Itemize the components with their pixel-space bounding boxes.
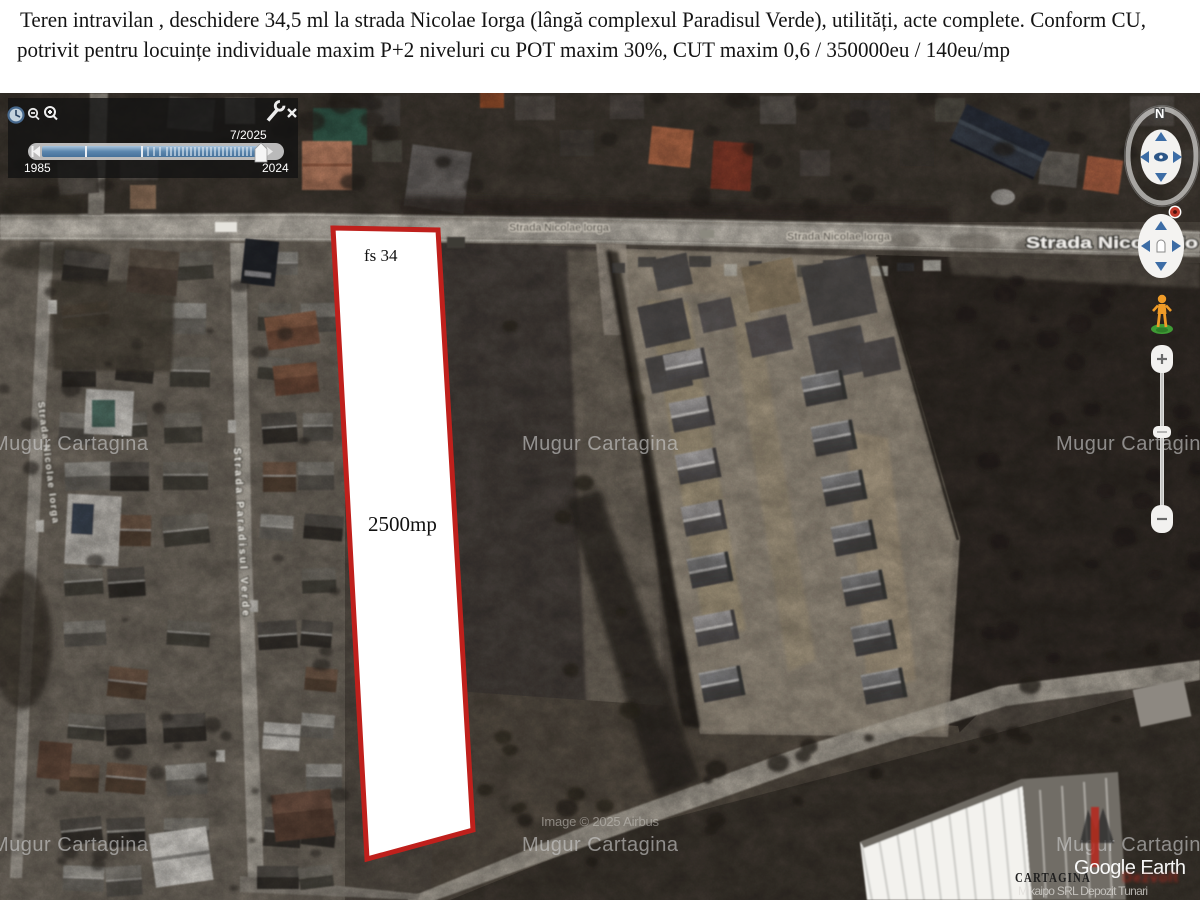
- svg-text:Strada Nicolae Iorga: Strada Nicolae Iorga: [787, 231, 891, 243]
- svg-text:Mikaipo SRL Depozit Tunari: Mikaipo SRL Depozit Tunari: [1018, 884, 1148, 898]
- svg-text:Mugur Cartagina: Mugur Cartagina: [522, 433, 679, 455]
- svg-text:N: N: [1155, 106, 1164, 121]
- svg-text:2500mp: 2500mp: [368, 512, 437, 536]
- svg-text:Mugur Cartagina: Mugur Cartagina: [1056, 834, 1200, 856]
- svg-text:potrivit pentru locuințe indiv: potrivit pentru locuințe individuale max…: [17, 37, 1010, 62]
- svg-text:Mugur Cartagina: Mugur Cartagina: [522, 834, 679, 856]
- svg-text:Mugur Cartagina: Mugur Cartagina: [0, 433, 149, 455]
- svg-text:Image © 2025 Airbus: Image © 2025 Airbus: [541, 814, 660, 829]
- svg-text:7/2025: 7/2025: [230, 128, 267, 142]
- svg-text:Teren intravilan , deschidere: Teren intravilan , deschidere 34,5 ml la…: [20, 7, 1146, 32]
- svg-text:1985: 1985: [24, 161, 51, 175]
- svg-text:Mugur Cartagina: Mugur Cartagina: [1056, 433, 1200, 455]
- svg-text:Dezvolt: Dezvolt: [1122, 869, 1178, 885]
- svg-text:2024: 2024: [262, 161, 289, 175]
- svg-text:Mugur Cartagina: Mugur Cartagina: [0, 834, 149, 856]
- svg-text:fs 34: fs 34: [364, 246, 398, 265]
- svg-text:Strada Nicolae Iorga: Strada Nicolae Iorga: [509, 222, 610, 234]
